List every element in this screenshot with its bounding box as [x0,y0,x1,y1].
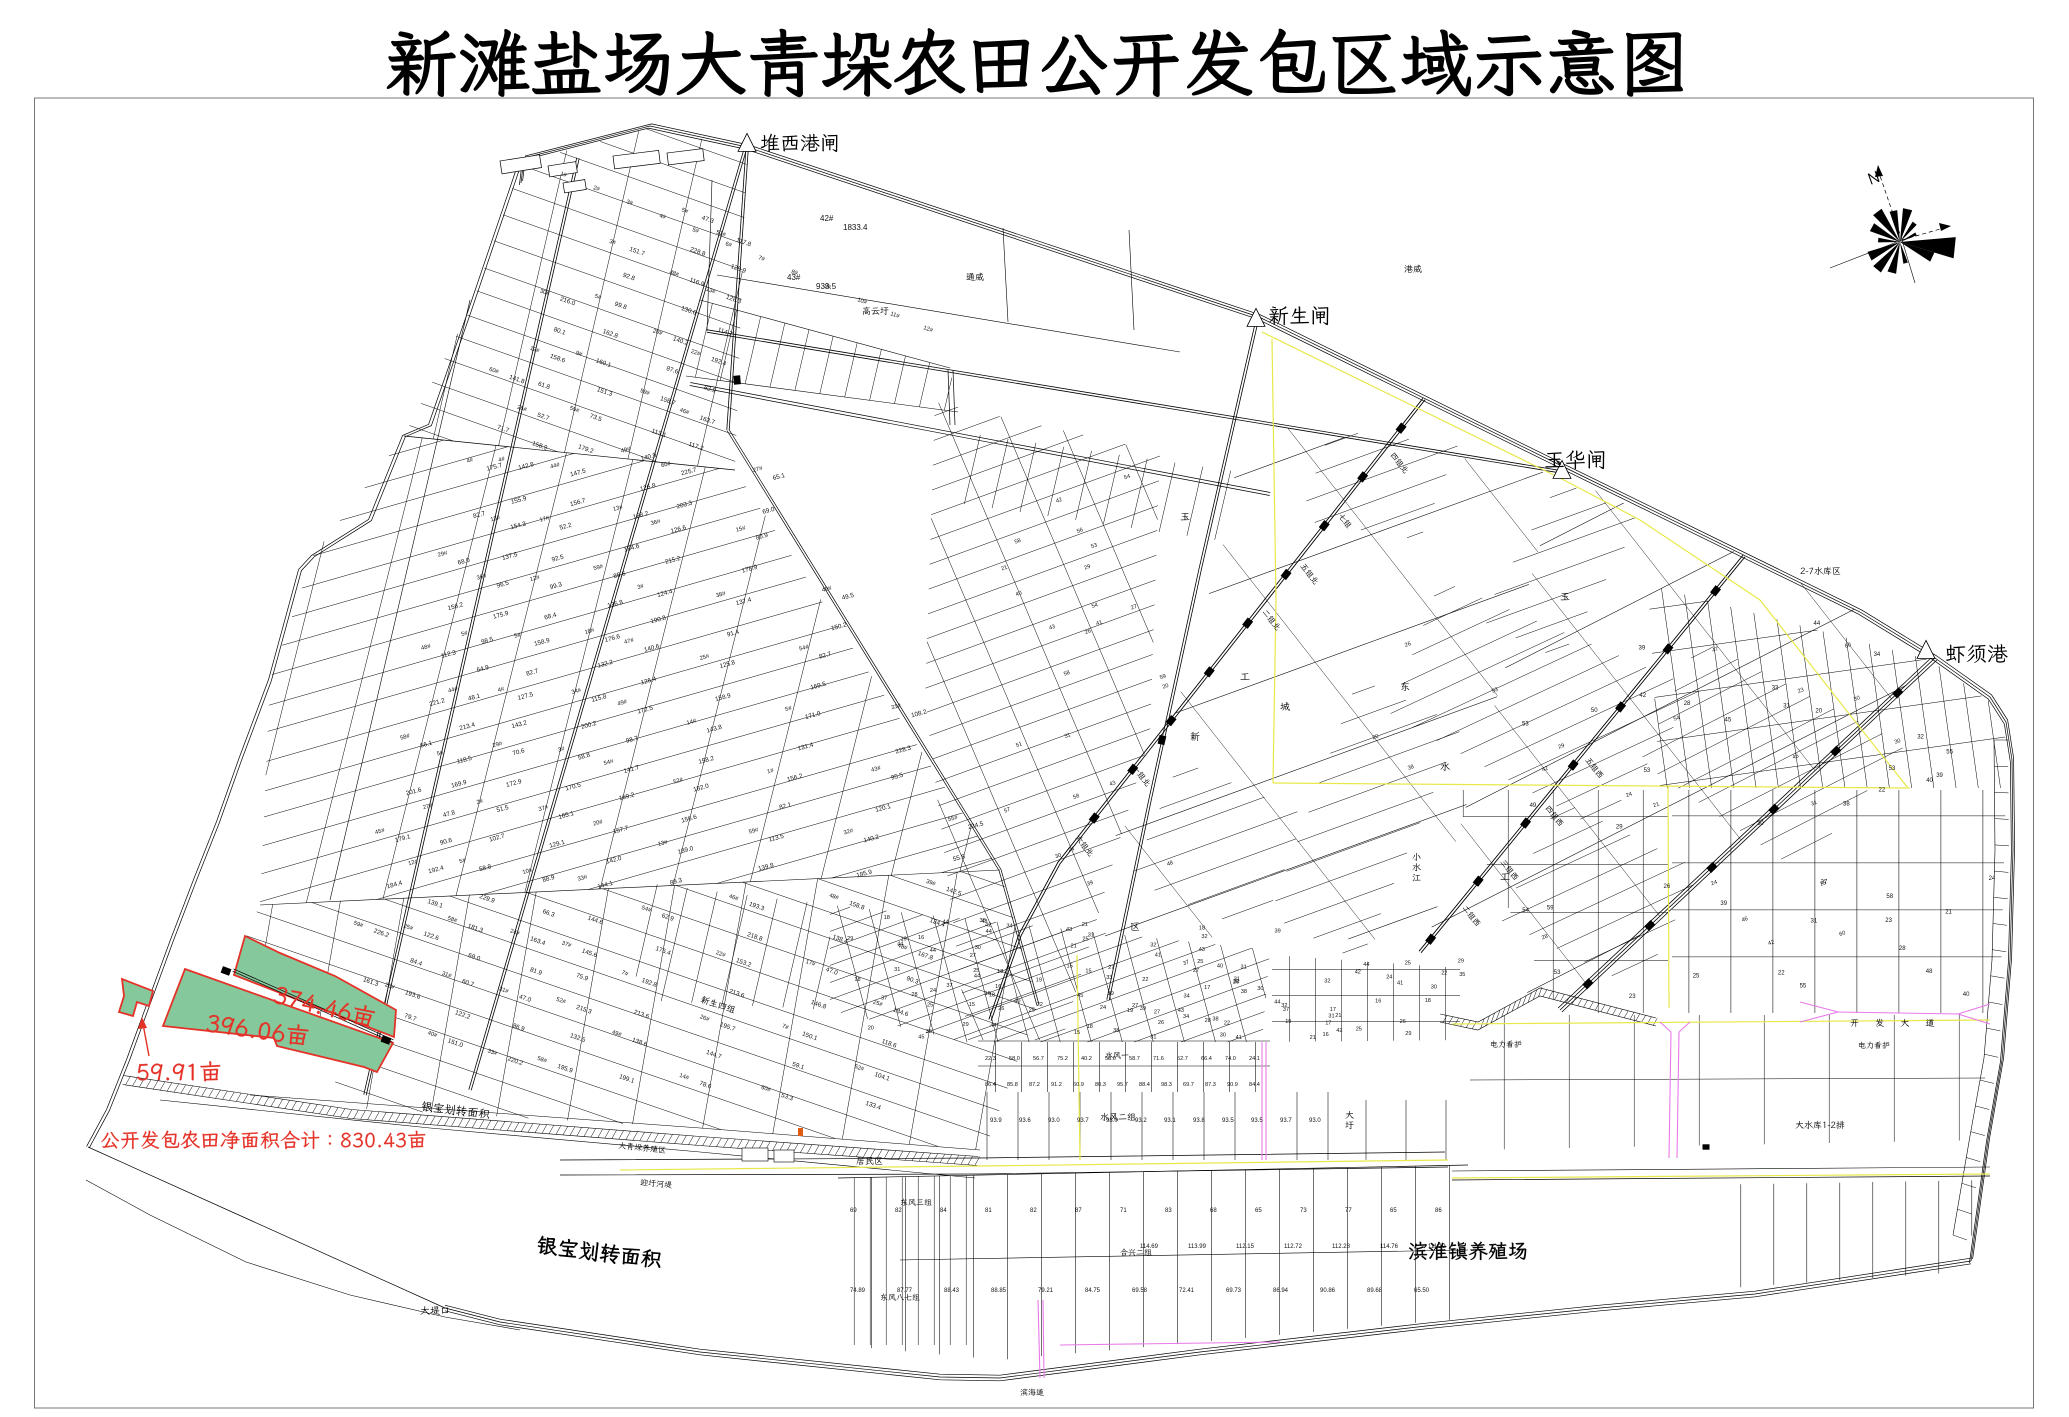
svg-text:65.50: 65.50 [1414,1288,1430,1294]
svg-text:1833.4: 1833.4 [843,223,868,232]
svg-text:82: 82 [1030,1208,1037,1214]
svg-text:32: 32 [1281,1003,1287,1009]
svg-text:91.2: 91.2 [1051,1082,1062,1088]
svg-text:93.5: 93.5 [1251,1118,1263,1124]
svg-text:26: 26 [1664,884,1671,890]
svg-text:55: 55 [1800,983,1807,989]
svg-text:84: 84 [940,1208,947,1214]
svg-text:71.6: 71.6 [1153,1056,1164,1062]
svg-text:30: 30 [1220,1033,1226,1039]
svg-text:16: 16 [995,984,1001,990]
svg-text:113.99: 113.99 [1188,1244,1207,1250]
svg-text:29: 29 [1458,959,1464,965]
svg-text:27: 27 [970,953,976,959]
svg-text:86: 86 [1435,1208,1442,1214]
svg-text:39: 39 [1108,991,1114,997]
svg-text:27: 27 [1154,1009,1160,1015]
svg-text:42: 42 [1355,970,1361,976]
svg-text:30: 30 [1257,986,1263,992]
svg-text:24: 24 [1989,876,1996,882]
svg-text:16: 16 [1323,1032,1329,1038]
svg-text:33: 33 [1772,686,1779,692]
svg-text:93.2: 93.2 [1135,1118,1147,1124]
svg-text:41: 41 [1155,953,1161,959]
svg-text:18: 18 [1087,1024,1093,1030]
svg-text:45: 45 [918,1034,924,1040]
svg-text:87: 87 [1075,1208,1082,1214]
svg-text:31: 31 [1811,919,1818,925]
svg-text:18: 18 [854,977,860,983]
svg-text:25: 25 [1356,1026,1362,1032]
svg-text:29: 29 [847,936,853,942]
svg-text:26: 26 [1400,1019,1406,1025]
svg-text:21: 21 [1310,1035,1316,1041]
svg-text:22: 22 [1441,970,1447,976]
svg-text:22: 22 [1778,971,1785,977]
svg-text:44: 44 [930,948,936,954]
svg-text:28: 28 [911,992,917,998]
svg-text:93.0: 93.0 [1106,1118,1118,1124]
svg-text:93.5: 93.5 [1222,1118,1234,1124]
svg-text:50: 50 [1591,708,1598,714]
svg-text:32: 32 [1917,734,1924,740]
svg-text:40: 40 [1963,992,1970,998]
svg-text:34: 34 [1183,1014,1189,1020]
svg-text:32: 32 [1324,978,1330,984]
svg-text:26: 26 [1158,1020,1164,1026]
svg-text:43: 43 [1178,1008,1184,1014]
svg-text:38: 38 [1113,1028,1119,1034]
svg-text:37: 37 [946,983,952,989]
svg-text:90.86: 90.86 [1320,1288,1336,1294]
svg-text:35: 35 [926,1029,932,1035]
svg-text:40: 40 [1014,999,1020,1005]
svg-text:42#: 42# [820,214,834,223]
svg-text:69: 69 [850,1208,857,1214]
svg-text:15: 15 [1067,964,1073,970]
svg-text:86.4: 86.4 [985,1082,996,1088]
svg-text:39: 39 [1720,901,1727,907]
svg-text:44: 44 [1363,962,1369,968]
svg-text:20: 20 [1815,709,1822,715]
svg-text:19: 19 [1285,1019,1291,1025]
svg-text:75.2: 75.2 [1057,1056,1068,1062]
svg-text:111.10: 111.10 [1428,1244,1446,1250]
svg-text:31: 31 [894,967,900,973]
svg-text:44: 44 [986,929,992,935]
svg-text:74.0: 74.0 [1225,1056,1236,1062]
svg-text:42: 42 [1336,1028,1342,1034]
svg-text:15: 15 [1074,1030,1080,1036]
svg-text:42: 42 [1639,693,1646,699]
svg-text:89.68: 89.68 [1367,1288,1383,1294]
svg-text:39: 39 [1639,646,1646,652]
svg-text:71: 71 [1120,1208,1127,1214]
svg-text:18: 18 [884,915,890,921]
svg-text:112.15: 112.15 [1236,1244,1255,1250]
svg-text:22: 22 [1142,977,1148,983]
svg-text:30: 30 [1757,821,1764,827]
svg-text:44: 44 [897,942,903,948]
svg-text:66.4: 66.4 [1201,1056,1212,1062]
svg-text:73: 73 [1300,1208,1307,1214]
svg-text:95.7: 95.7 [1117,1082,1128,1088]
svg-text:58.0: 58.0 [1009,1056,1020,1062]
svg-text:18: 18 [1199,926,1205,932]
svg-text:34: 34 [1874,652,1881,658]
svg-text:15: 15 [969,1002,975,1008]
svg-text:31: 31 [1234,977,1240,983]
svg-text:43: 43 [981,919,987,925]
svg-text:21: 21 [1082,922,1088,928]
svg-text:40: 40 [1926,778,1933,784]
svg-text:31: 31 [1783,703,1790,709]
svg-text:90.9: 90.9 [1227,1082,1238,1088]
svg-text:114.76: 114.76 [1380,1244,1399,1250]
svg-text:28: 28 [1899,946,1906,952]
svg-text:87.77: 87.77 [897,1288,913,1294]
svg-text:23: 23 [1885,918,1892,924]
svg-text:45: 45 [1077,993,1083,999]
svg-text:58.0: 58.0 [1105,1056,1116,1062]
svg-text:40: 40 [1217,964,1223,970]
svg-text:25: 25 [1405,961,1411,967]
svg-text:88.85: 88.85 [991,1288,1007,1294]
svg-text:39: 39 [1140,1006,1146,1012]
svg-text:35: 35 [1459,972,1465,978]
svg-text:65: 65 [1390,1208,1397,1214]
svg-text:49: 49 [1530,803,1537,809]
svg-text:88.4: 88.4 [1139,1082,1150,1088]
svg-text:56.7: 56.7 [1033,1056,1044,1062]
svg-text:32: 32 [1150,943,1156,949]
svg-text:21: 21 [1945,910,1952,916]
svg-text:55: 55 [1946,749,1953,755]
svg-text:31: 31 [1328,1014,1334,1020]
svg-text:27: 27 [1108,965,1114,971]
svg-text:44: 44 [974,973,980,979]
svg-text:16: 16 [918,935,924,941]
svg-text:86.94: 86.94 [1273,1288,1289,1294]
svg-text:45: 45 [1725,718,1732,724]
svg-text:83: 83 [1165,1208,1172,1214]
svg-text:65: 65 [1255,1208,1262,1214]
svg-text:80.3: 80.3 [1095,1082,1106,1088]
svg-text:43: 43 [1066,927,1072,933]
svg-text:34: 34 [1006,924,1012,930]
svg-text:93.7: 93.7 [1077,1118,1089,1124]
svg-text:37: 37 [881,996,887,1002]
svg-text:25: 25 [1693,974,1700,980]
svg-text:85.8: 85.8 [1007,1082,1018,1088]
svg-text:53: 53 [1554,970,1561,976]
svg-text:93.0: 93.0 [1309,1118,1321,1124]
svg-text:26: 26 [998,1006,1004,1012]
svg-text:24: 24 [930,988,936,994]
svg-text:30: 30 [1431,984,1437,990]
svg-text:59: 59 [1547,905,1554,911]
svg-text:58.7: 58.7 [1129,1056,1140,1062]
svg-text:29: 29 [1405,1031,1411,1037]
svg-text:24: 24 [1100,1005,1106,1011]
svg-text:88.43: 88.43 [944,1288,960,1294]
svg-text:41: 41 [1397,981,1403,987]
svg-text:30: 30 [975,945,981,951]
svg-text:58: 58 [1886,894,1893,900]
svg-text:87.2: 87.2 [1029,1082,1040,1088]
svg-text:18: 18 [997,969,1003,975]
svg-text:40.2: 40.2 [1081,1056,1092,1062]
svg-text:52.7: 52.7 [1177,1056,1188,1062]
svg-text:98.3: 98.3 [1161,1082,1172,1088]
svg-text:84.4: 84.4 [1249,1082,1260,1088]
svg-text:39: 39 [1275,928,1281,934]
svg-text:77: 77 [1345,1208,1352,1214]
svg-text:31: 31 [1241,964,1247,970]
svg-text:16: 16 [985,991,991,997]
svg-text:41: 41 [1236,1035,1242,1041]
svg-text:33: 33 [1106,975,1112,981]
svg-text:38: 38 [1212,1017,1218,1023]
svg-text:48: 48 [1926,969,1933,975]
svg-text:93.8: 93.8 [1193,1118,1205,1124]
svg-text:22.3: 22.3 [985,1056,996,1062]
svg-text:27: 27 [1132,1003,1138,1009]
svg-text:31: 31 [1088,933,1094,939]
svg-text:39: 39 [1936,773,1943,779]
svg-text:93.1: 93.1 [1164,1118,1176,1124]
svg-text:31: 31 [1150,1034,1156,1040]
svg-text:17: 17 [1204,985,1210,991]
svg-text:69.73: 69.73 [1226,1288,1242,1294]
svg-text:93.6: 93.6 [1019,1118,1031,1124]
svg-text:38: 38 [1241,989,1247,995]
svg-text:22: 22 [1224,1021,1230,1027]
svg-text:68: 68 [1210,1208,1217,1214]
svg-text:93.9: 93.9 [990,1118,1002,1124]
svg-text:17: 17 [1330,1007,1336,1013]
svg-text:114.69: 114.69 [1140,1244,1159,1250]
svg-text:79.21: 79.21 [1038,1288,1054,1294]
svg-text:25: 25 [927,1002,933,1008]
svg-text:21: 21 [1335,1013,1341,1019]
svg-text:53: 53 [1522,721,1529,727]
svg-text:44: 44 [943,920,949,926]
svg-text:28: 28 [1205,1018,1211,1024]
svg-text:60.9: 60.9 [1073,1082,1084,1088]
svg-text:17: 17 [1325,1020,1331,1026]
svg-text:20: 20 [868,1025,874,1031]
svg-text:54: 54 [1522,908,1529,914]
svg-text:21: 21 [1071,944,1077,950]
svg-text:27: 27 [1193,968,1199,974]
svg-text:15: 15 [1085,968,1091,974]
svg-text:27: 27 [1821,880,1828,886]
svg-text:22: 22 [1037,1002,1043,1008]
svg-text:29: 29 [963,1022,969,1028]
svg-text:53: 53 [1889,766,1896,772]
svg-text:38: 38 [1843,801,1850,807]
svg-text:24: 24 [1386,974,1392,980]
svg-text:44: 44 [1814,621,1821,627]
svg-text:43: 43 [1199,947,1205,953]
svg-text:16: 16 [1375,999,1381,1005]
svg-text:87.3: 87.3 [1205,1082,1216,1088]
svg-text:112.28: 112.28 [1332,1244,1351,1250]
svg-text:18: 18 [1425,998,1431,1004]
svg-text:69.58: 69.58 [1132,1288,1148,1294]
svg-text:24.1: 24.1 [1249,1056,1260,1062]
svg-text:34: 34 [1184,994,1190,1000]
svg-text:93.7: 93.7 [1280,1118,1292,1124]
svg-text:72.41: 72.41 [1179,1288,1195,1294]
svg-text:44: 44 [1274,999,1280,1005]
svg-text:44: 44 [990,1023,996,1029]
svg-text:112.72: 112.72 [1284,1244,1303,1250]
svg-text:84.75: 84.75 [1085,1288,1101,1294]
svg-text:74.89: 74.89 [850,1288,866,1294]
svg-text:25: 25 [1197,959,1203,965]
svg-text:29: 29 [1616,825,1623,831]
svg-text:53: 53 [1644,768,1651,774]
svg-text:93.0: 93.0 [1048,1118,1060,1124]
svg-text:82: 82 [895,1208,902,1214]
svg-text:81: 81 [985,1208,992,1214]
svg-text:69.7: 69.7 [1183,1082,1194,1088]
svg-text:25: 25 [1029,1007,1035,1013]
svg-text:28: 28 [1684,701,1691,707]
svg-text:22: 22 [1879,788,1886,794]
svg-text:23: 23 [1629,994,1636,1000]
svg-text:32: 32 [1201,934,1207,940]
svg-text:19: 19 [1036,977,1042,983]
